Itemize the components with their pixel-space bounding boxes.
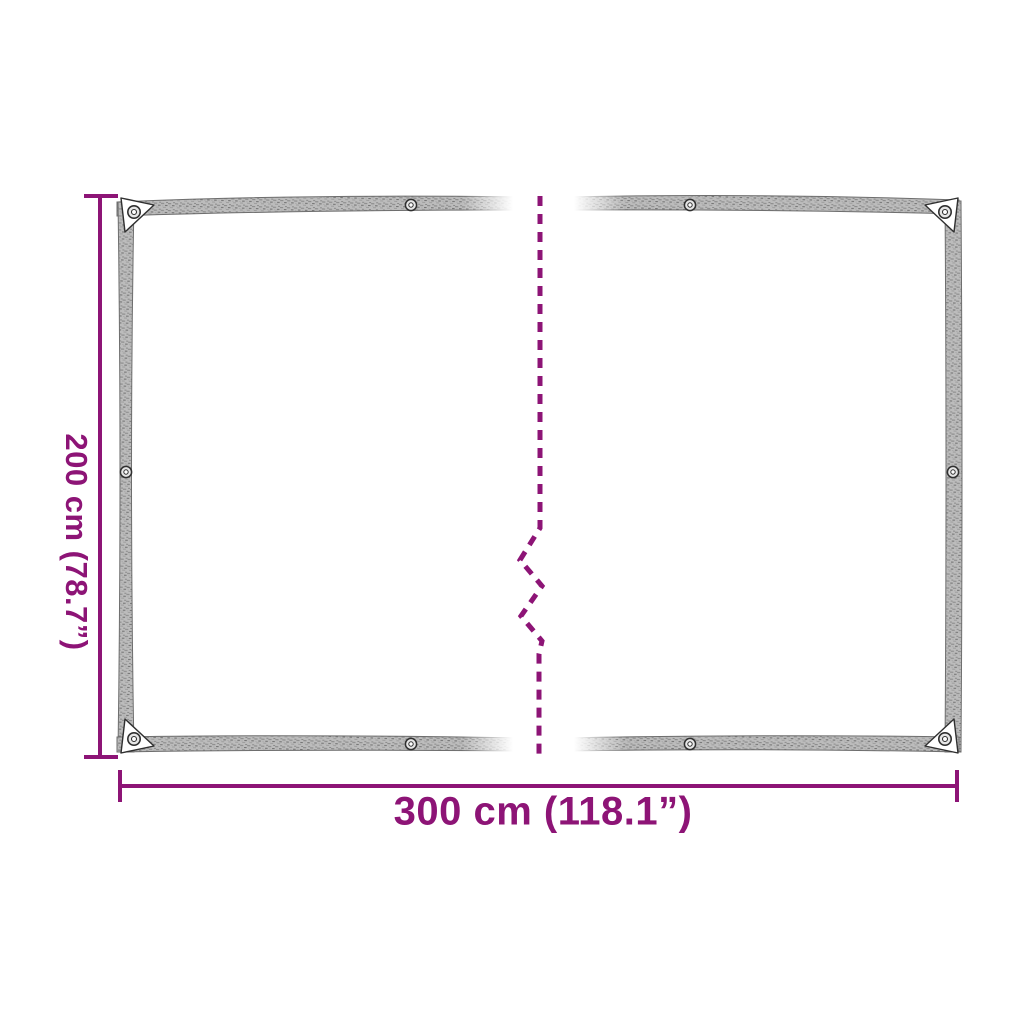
break-fade	[462, 188, 625, 758]
grommet-icon	[947, 466, 958, 477]
tarp-top-edge-left	[117, 196, 521, 216]
grommet-icon	[405, 738, 416, 749]
break-line	[520, 196, 542, 760]
tarp-top-edge-right	[566, 196, 960, 214]
grommet-icon	[128, 206, 140, 218]
tarp-diagram	[0, 0, 1024, 1024]
width-dimension-label: 300 cm (118.1”)	[394, 790, 693, 835]
product-dimension-diagram: 200 cm (78.7”) 300 cm (118.1”)	[0, 0, 1024, 1024]
grommet-icon	[684, 738, 695, 749]
grommet-icon	[939, 206, 951, 218]
grommet-icon	[939, 733, 951, 745]
grommet-icon	[405, 199, 416, 210]
grommet-icon	[684, 199, 695, 210]
tarp-bottom-edge-left	[117, 736, 521, 752]
grommet-icon	[120, 466, 131, 477]
grommet-icon	[128, 733, 140, 745]
height-dimension-label: 200 cm (78.7”)	[58, 433, 94, 650]
